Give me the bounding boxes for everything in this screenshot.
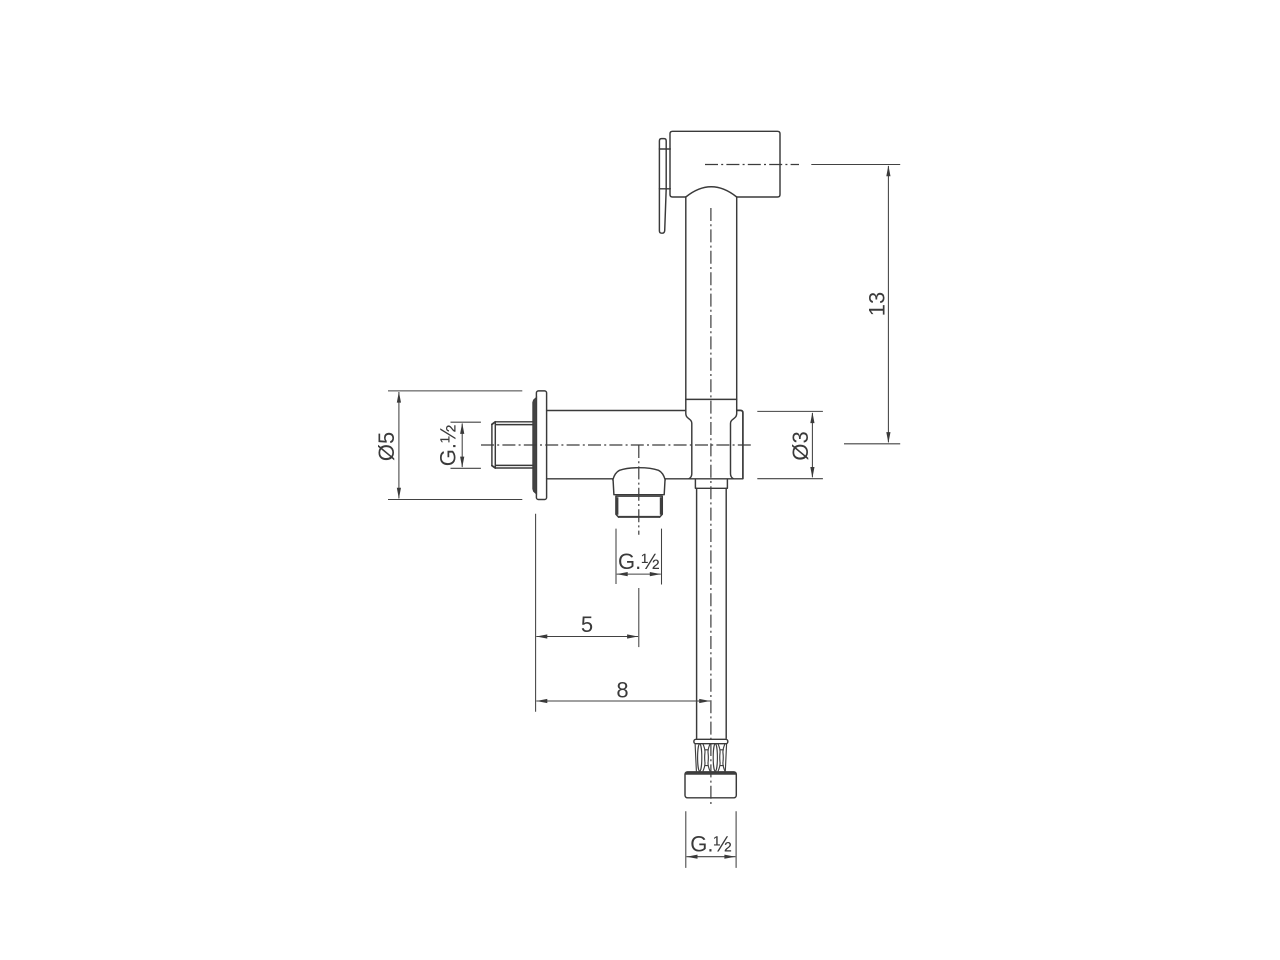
svg-text:13: 13	[865, 292, 890, 316]
svg-text:Ø5: Ø5	[374, 432, 399, 461]
svg-text:5: 5	[581, 612, 593, 637]
svg-text:G.½: G.½	[690, 832, 732, 857]
svg-text:8: 8	[616, 677, 628, 702]
svg-text:G.½: G.½	[436, 425, 461, 467]
svg-text:G.½: G.½	[618, 549, 660, 574]
svg-text:Ø3: Ø3	[788, 431, 813, 460]
